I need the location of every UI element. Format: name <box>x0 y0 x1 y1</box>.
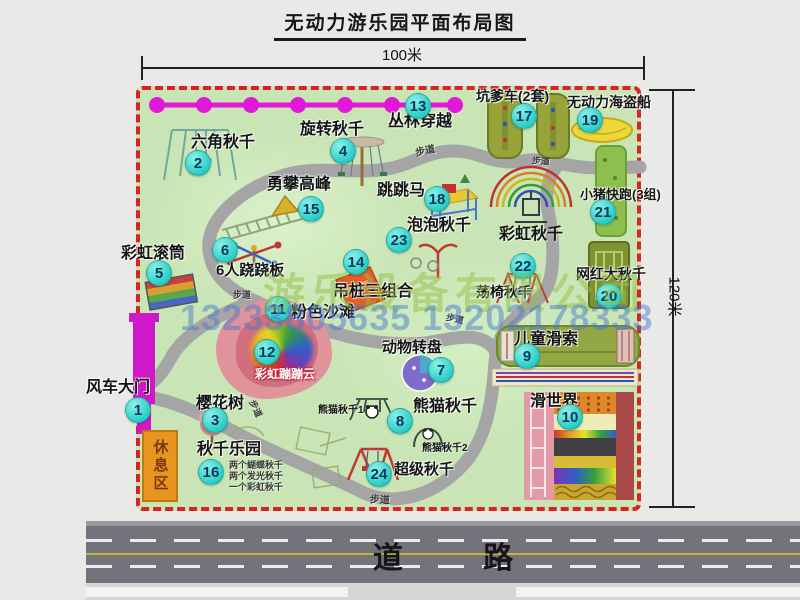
item-18-badge: 18 <box>424 186 450 212</box>
rainbow-swing-label: 彩虹秋千 <box>499 220 563 244</box>
swing-park-note-3: 一个彩虹秋千 <box>229 480 283 493</box>
dimension-top-label: 100米 <box>352 44 452 65</box>
dimension-top-line <box>141 67 644 69</box>
item-6-label: 6人跷跷板 <box>216 263 284 279</box>
road-label: 道 路 <box>86 526 800 583</box>
item-1-label: 风车大门 <box>86 380 150 397</box>
dimension-top-tick-right <box>643 56 645 80</box>
item-14-label: 吊桩三组合 <box>333 284 413 301</box>
item-20-badge: 20 <box>596 283 622 309</box>
page-title-wrap: 无动力游乐园平面布局图 <box>0 8 800 41</box>
page-title: 无动力游乐园平面布局图 <box>274 8 525 41</box>
item-12-label: 彩虹蹦蹦云 <box>255 368 315 381</box>
item-15-label: 勇攀高峰 <box>267 177 331 194</box>
item-2-badge: 2 <box>185 150 211 176</box>
item-24-badge: 24 <box>366 461 392 487</box>
item-17-badge: 17 <box>511 103 537 129</box>
road: 道 路 <box>86 521 800 583</box>
item-19-label: 无动力海盗船 <box>567 95 651 110</box>
panda-swing-1-label: 熊猫秋千1 <box>318 401 364 416</box>
item-13-badge: 13 <box>405 93 431 119</box>
item-21-label: 小猪快跑(3组) <box>580 188 661 202</box>
item-6-badge: 6 <box>212 237 238 263</box>
item-7-badge: 7 <box>428 357 454 383</box>
item-7-label: 动物转盘 <box>382 340 442 356</box>
item-21-badge: 21 <box>590 199 616 225</box>
road-shoulder <box>86 583 800 600</box>
item-4-badge: 4 <box>330 138 356 164</box>
rest-area-label: 休息区 <box>150 439 171 493</box>
path-label: 步道 <box>233 288 251 301</box>
item-17-label: 坑爹车(2套) <box>476 89 549 104</box>
item-19-badge: 19 <box>577 107 603 133</box>
panda-swing-2-label: 熊猫秋千2 <box>422 439 468 454</box>
screenshot-root: 无动力游乐园平面布局图 100米 120米 <box>0 0 800 600</box>
item-15-badge: 15 <box>298 196 324 222</box>
rest-area: 休息区 <box>142 430 178 502</box>
path-label: 步道 <box>370 490 391 506</box>
path-label: 步道 <box>531 153 550 168</box>
item-16-label: 秋千乐园 <box>197 442 261 459</box>
item-4-label: 旋转秋千 <box>300 122 364 139</box>
item-16-badge: 16 <box>198 459 224 485</box>
item-20-label: 网红大秋千 <box>576 267 646 282</box>
shoulder-stripe <box>86 587 348 597</box>
item-22-label: 荡椅秋千 <box>476 285 532 300</box>
item-14-badge: 14 <box>343 249 369 275</box>
item-12-badge: 12 <box>254 339 280 365</box>
item-23-label: 泡泡秋千 <box>407 218 471 235</box>
dimension-right-tick-top <box>649 89 695 91</box>
shoulder-stripe <box>516 587 800 597</box>
dimension-right-tick-bottom <box>649 506 695 508</box>
dimension-right-label: 120米 <box>665 275 686 319</box>
item-8-label: 熊猫秋千 <box>413 399 477 416</box>
item-23-badge: 23 <box>386 227 412 253</box>
item-1-badge: 1 <box>125 397 151 423</box>
item-18-label: 跳跳马 <box>377 183 425 200</box>
item-24-label: 超级秋千 <box>394 462 454 478</box>
item-10-badge: 10 <box>557 404 583 430</box>
item-8-badge: 8 <box>387 408 413 434</box>
item-5-badge: 5 <box>146 260 172 286</box>
item-11-label: 粉色沙滩 <box>291 305 355 322</box>
dimension-top-tick-left <box>141 56 143 80</box>
item-11-badge: 11 <box>265 296 291 322</box>
item-9-badge: 9 <box>514 343 540 369</box>
item-22-badge: 22 <box>510 253 536 279</box>
item-3-badge: 3 <box>202 407 228 433</box>
